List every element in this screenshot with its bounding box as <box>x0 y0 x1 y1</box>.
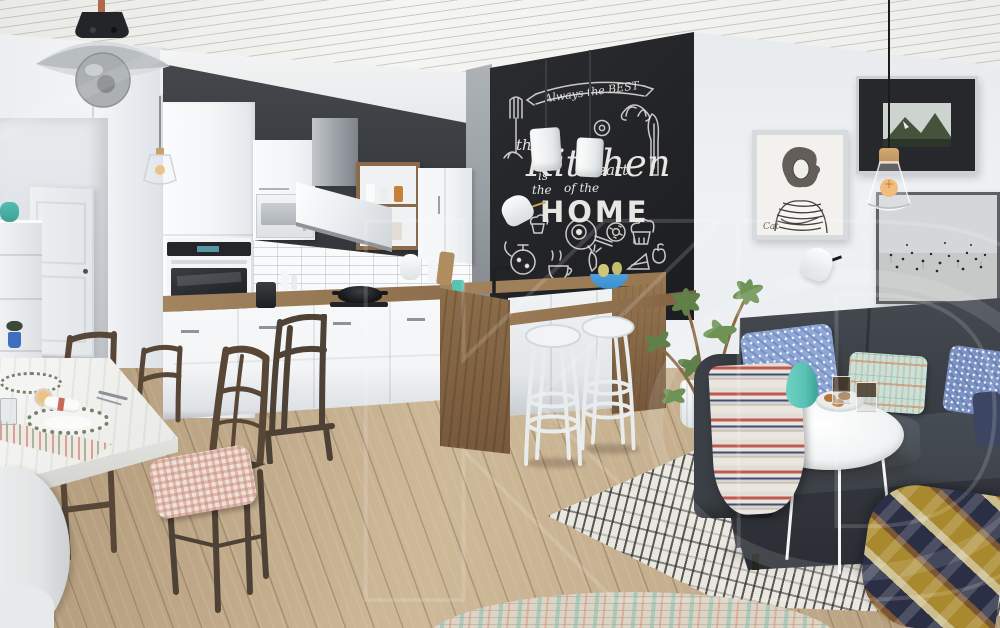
sketch-frame: Cat <box>752 130 848 240</box>
white-kettle <box>400 254 421 280</box>
counter-jar <box>281 270 289 290</box>
drinking-glass <box>832 376 851 404</box>
white-pendant-lamp <box>530 127 563 172</box>
pear <box>598 264 609 277</box>
shelf-jar-amber <box>394 186 403 202</box>
coffee-maker <box>256 282 276 308</box>
blue-flower-pot <box>8 332 21 348</box>
bar-waterfall-panel <box>438 282 510 454</box>
interior-scene: Always the BEST the Kitchen is the Heart… <box>0 0 1000 628</box>
teal-kettle <box>0 202 19 222</box>
drinking-glass <box>856 382 877 412</box>
shelf-jar <box>380 188 388 202</box>
oven-control-panel <box>167 242 251 256</box>
pendant-cord <box>589 50 591 138</box>
white-pendant-lamp <box>575 137 604 177</box>
sofa-leg <box>752 554 759 570</box>
oven-handle <box>171 260 247 264</box>
upper-cabinet-right <box>418 168 472 264</box>
door-knob <box>83 269 88 274</box>
dinner-plate <box>0 372 62 394</box>
coffee-table-leg <box>838 462 841 574</box>
black-faucet <box>484 260 512 294</box>
black-pot <box>338 286 382 303</box>
industrial-pendant-lamp <box>30 0 178 112</box>
hood-chimney <box>312 118 358 186</box>
glass-pendant-right <box>858 160 920 224</box>
svg-text:of the: of the <box>564 181 599 195</box>
svg-text:Cat: Cat <box>763 222 779 232</box>
counter-jar <box>291 275 297 290</box>
pendant-cord <box>888 0 890 150</box>
pear <box>612 262 622 275</box>
shelf-jar <box>366 184 375 202</box>
pendant-cord <box>545 60 547 130</box>
mountain-photo <box>883 103 951 147</box>
water-glass <box>0 398 17 425</box>
navy-pillow <box>972 391 1000 447</box>
fashion-sketch: Cat <box>757 135 843 235</box>
